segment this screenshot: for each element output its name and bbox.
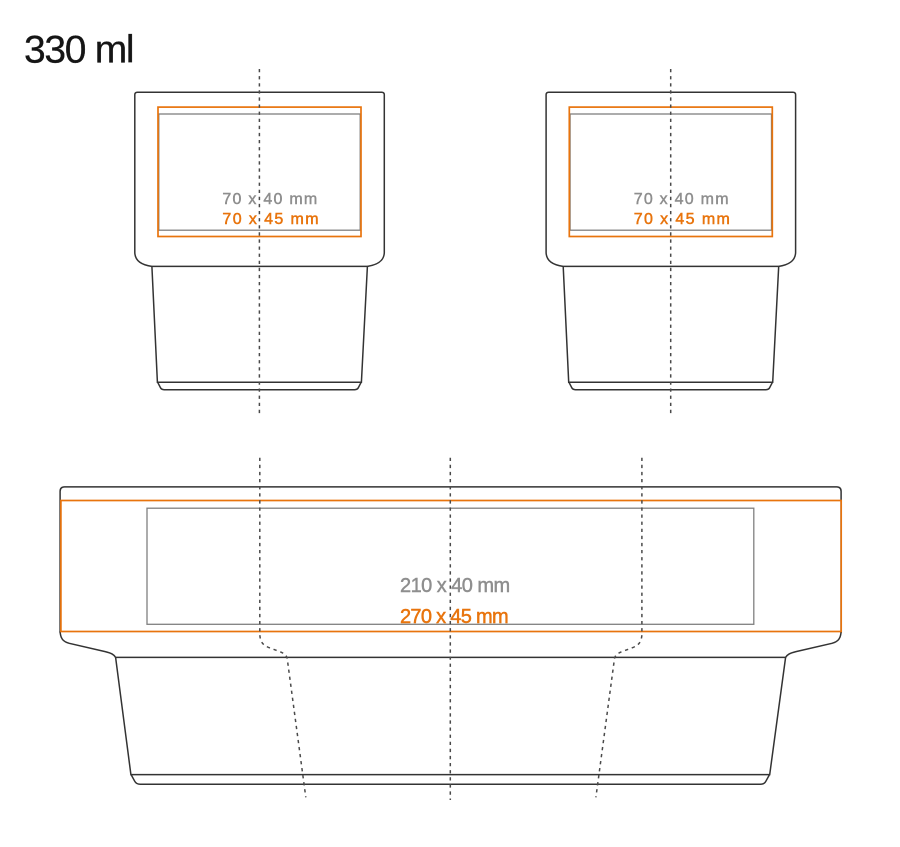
svg-text:70 x 40 mm: 70 x 40 mm: [222, 191, 318, 208]
svg-text:210 x 40 mm: 210 x 40 mm: [400, 575, 510, 597]
svg-text:70 x 45 mm: 70 x 45 mm: [222, 211, 320, 228]
svg-text:270 x 45 mm: 270 x 45 mm: [400, 606, 508, 628]
svg-text:330 ml: 330 ml: [24, 29, 133, 72]
svg-text:70 x 45 mm: 70 x 45 mm: [634, 211, 732, 228]
svg-text:70 x 40 mm: 70 x 40 mm: [634, 191, 730, 208]
